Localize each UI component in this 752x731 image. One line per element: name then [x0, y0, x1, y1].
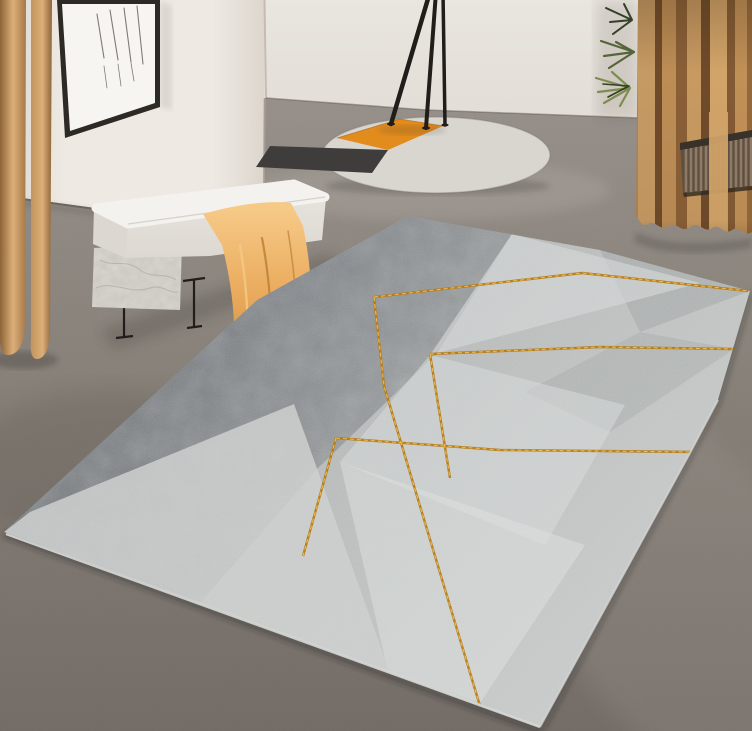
tripod-foot-3	[441, 124, 448, 127]
tripod-foot-2	[422, 126, 430, 129]
curtain-shading	[636, 0, 752, 245]
left-curtain-fold-1	[0, 0, 26, 355]
scene-svg	[0, 0, 752, 731]
left-curtain-fold-2	[31, 0, 52, 359]
tripod-foot-1	[387, 122, 395, 125]
right-curtain	[636, 0, 752, 245]
frame-wall-shadow	[160, 0, 172, 110]
lamp-shadow	[378, 125, 446, 135]
room-photo	[0, 0, 752, 731]
